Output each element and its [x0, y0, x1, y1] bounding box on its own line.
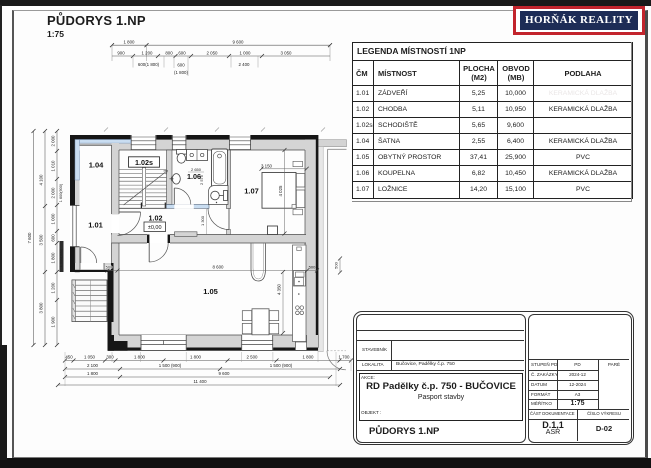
- svg-text:500: 500: [106, 265, 113, 270]
- svg-text:1.02s: 1.02s: [135, 158, 153, 167]
- svg-text:2 575: 2 575: [199, 174, 204, 185]
- svg-text:1 500(900): 1 500(900): [59, 248, 63, 267]
- svg-text:600: 600: [51, 234, 56, 242]
- svg-text:1 000: 1 000: [51, 213, 56, 225]
- svg-text:2 100: 2 100: [87, 363, 99, 368]
- svg-text:1 050: 1 050: [84, 354, 96, 359]
- svg-text:4 100: 4 100: [39, 174, 44, 186]
- svg-text:8 600: 8 600: [213, 265, 225, 270]
- svg-text:7 600: 7 600: [27, 232, 32, 244]
- svg-text:1 800: 1 800: [124, 40, 136, 45]
- svg-text:1 700: 1 700: [339, 354, 351, 359]
- svg-text:500: 500: [309, 265, 316, 270]
- svg-text:3 150: 3 150: [261, 164, 273, 169]
- svg-text:9 600: 9 600: [219, 371, 231, 376]
- svg-text:2 500: 2 500: [247, 354, 259, 359]
- svg-text:1 800: 1 800: [87, 371, 99, 376]
- svg-text:1 900: 1 900: [51, 316, 56, 328]
- svg-text:300: 300: [106, 354, 114, 359]
- svg-text:450: 450: [65, 354, 73, 359]
- svg-text:1 600(900): 1 600(900): [59, 183, 63, 202]
- svg-text:1.04: 1.04: [89, 161, 104, 170]
- svg-text:900: 900: [117, 50, 125, 55]
- svg-text:1 010: 1 010: [51, 160, 56, 172]
- svg-text:(1 800): (1 800): [174, 70, 188, 75]
- svg-text:800: 800: [165, 50, 173, 55]
- svg-text:3 050: 3 050: [281, 50, 293, 55]
- svg-text:±0,00: ±0,00: [148, 225, 162, 231]
- svg-text:2 000: 2 000: [51, 135, 56, 147]
- svg-text:1 200: 1 200: [142, 50, 154, 55]
- svg-text:2 650: 2 650: [191, 167, 202, 172]
- svg-text:600(1 800): 600(1 800): [138, 62, 160, 67]
- svg-text:1 200: 1 200: [51, 282, 56, 294]
- svg-text:1 500 (900): 1 500 (900): [159, 363, 182, 368]
- svg-text:11 400: 11 400: [193, 379, 207, 384]
- svg-text:4 350: 4 350: [277, 283, 282, 295]
- svg-text:1 800: 1 800: [51, 252, 56, 264]
- svg-text:3 800: 3 800: [39, 302, 44, 314]
- svg-text:1.05: 1.05: [203, 287, 218, 296]
- svg-text:600: 600: [178, 50, 186, 55]
- svg-text:2 050: 2 050: [207, 50, 219, 55]
- svg-text:1.01: 1.01: [88, 221, 103, 230]
- svg-text:1 800: 1 800: [303, 354, 315, 359]
- svg-text:9 600: 9 600: [233, 40, 245, 45]
- svg-text:1.07: 1.07: [244, 187, 259, 196]
- svg-text:1 000: 1 000: [240, 50, 252, 55]
- svg-text:3 500: 3 500: [39, 234, 44, 246]
- svg-text:1 800: 1 800: [190, 354, 202, 359]
- svg-text:1 300: 1 300: [200, 215, 205, 226]
- svg-text:500: 500: [333, 261, 338, 268]
- svg-text:1 500 (900): 1 500 (900): [270, 363, 293, 368]
- svg-text:600: 600: [177, 63, 185, 68]
- svg-text:2 400: 2 400: [239, 62, 251, 67]
- svg-text:4 025: 4 025: [278, 185, 283, 197]
- svg-text:2 000: 2 000: [51, 187, 56, 199]
- svg-text:1 800: 1 800: [134, 354, 146, 359]
- svg-text:1.02: 1.02: [149, 214, 163, 223]
